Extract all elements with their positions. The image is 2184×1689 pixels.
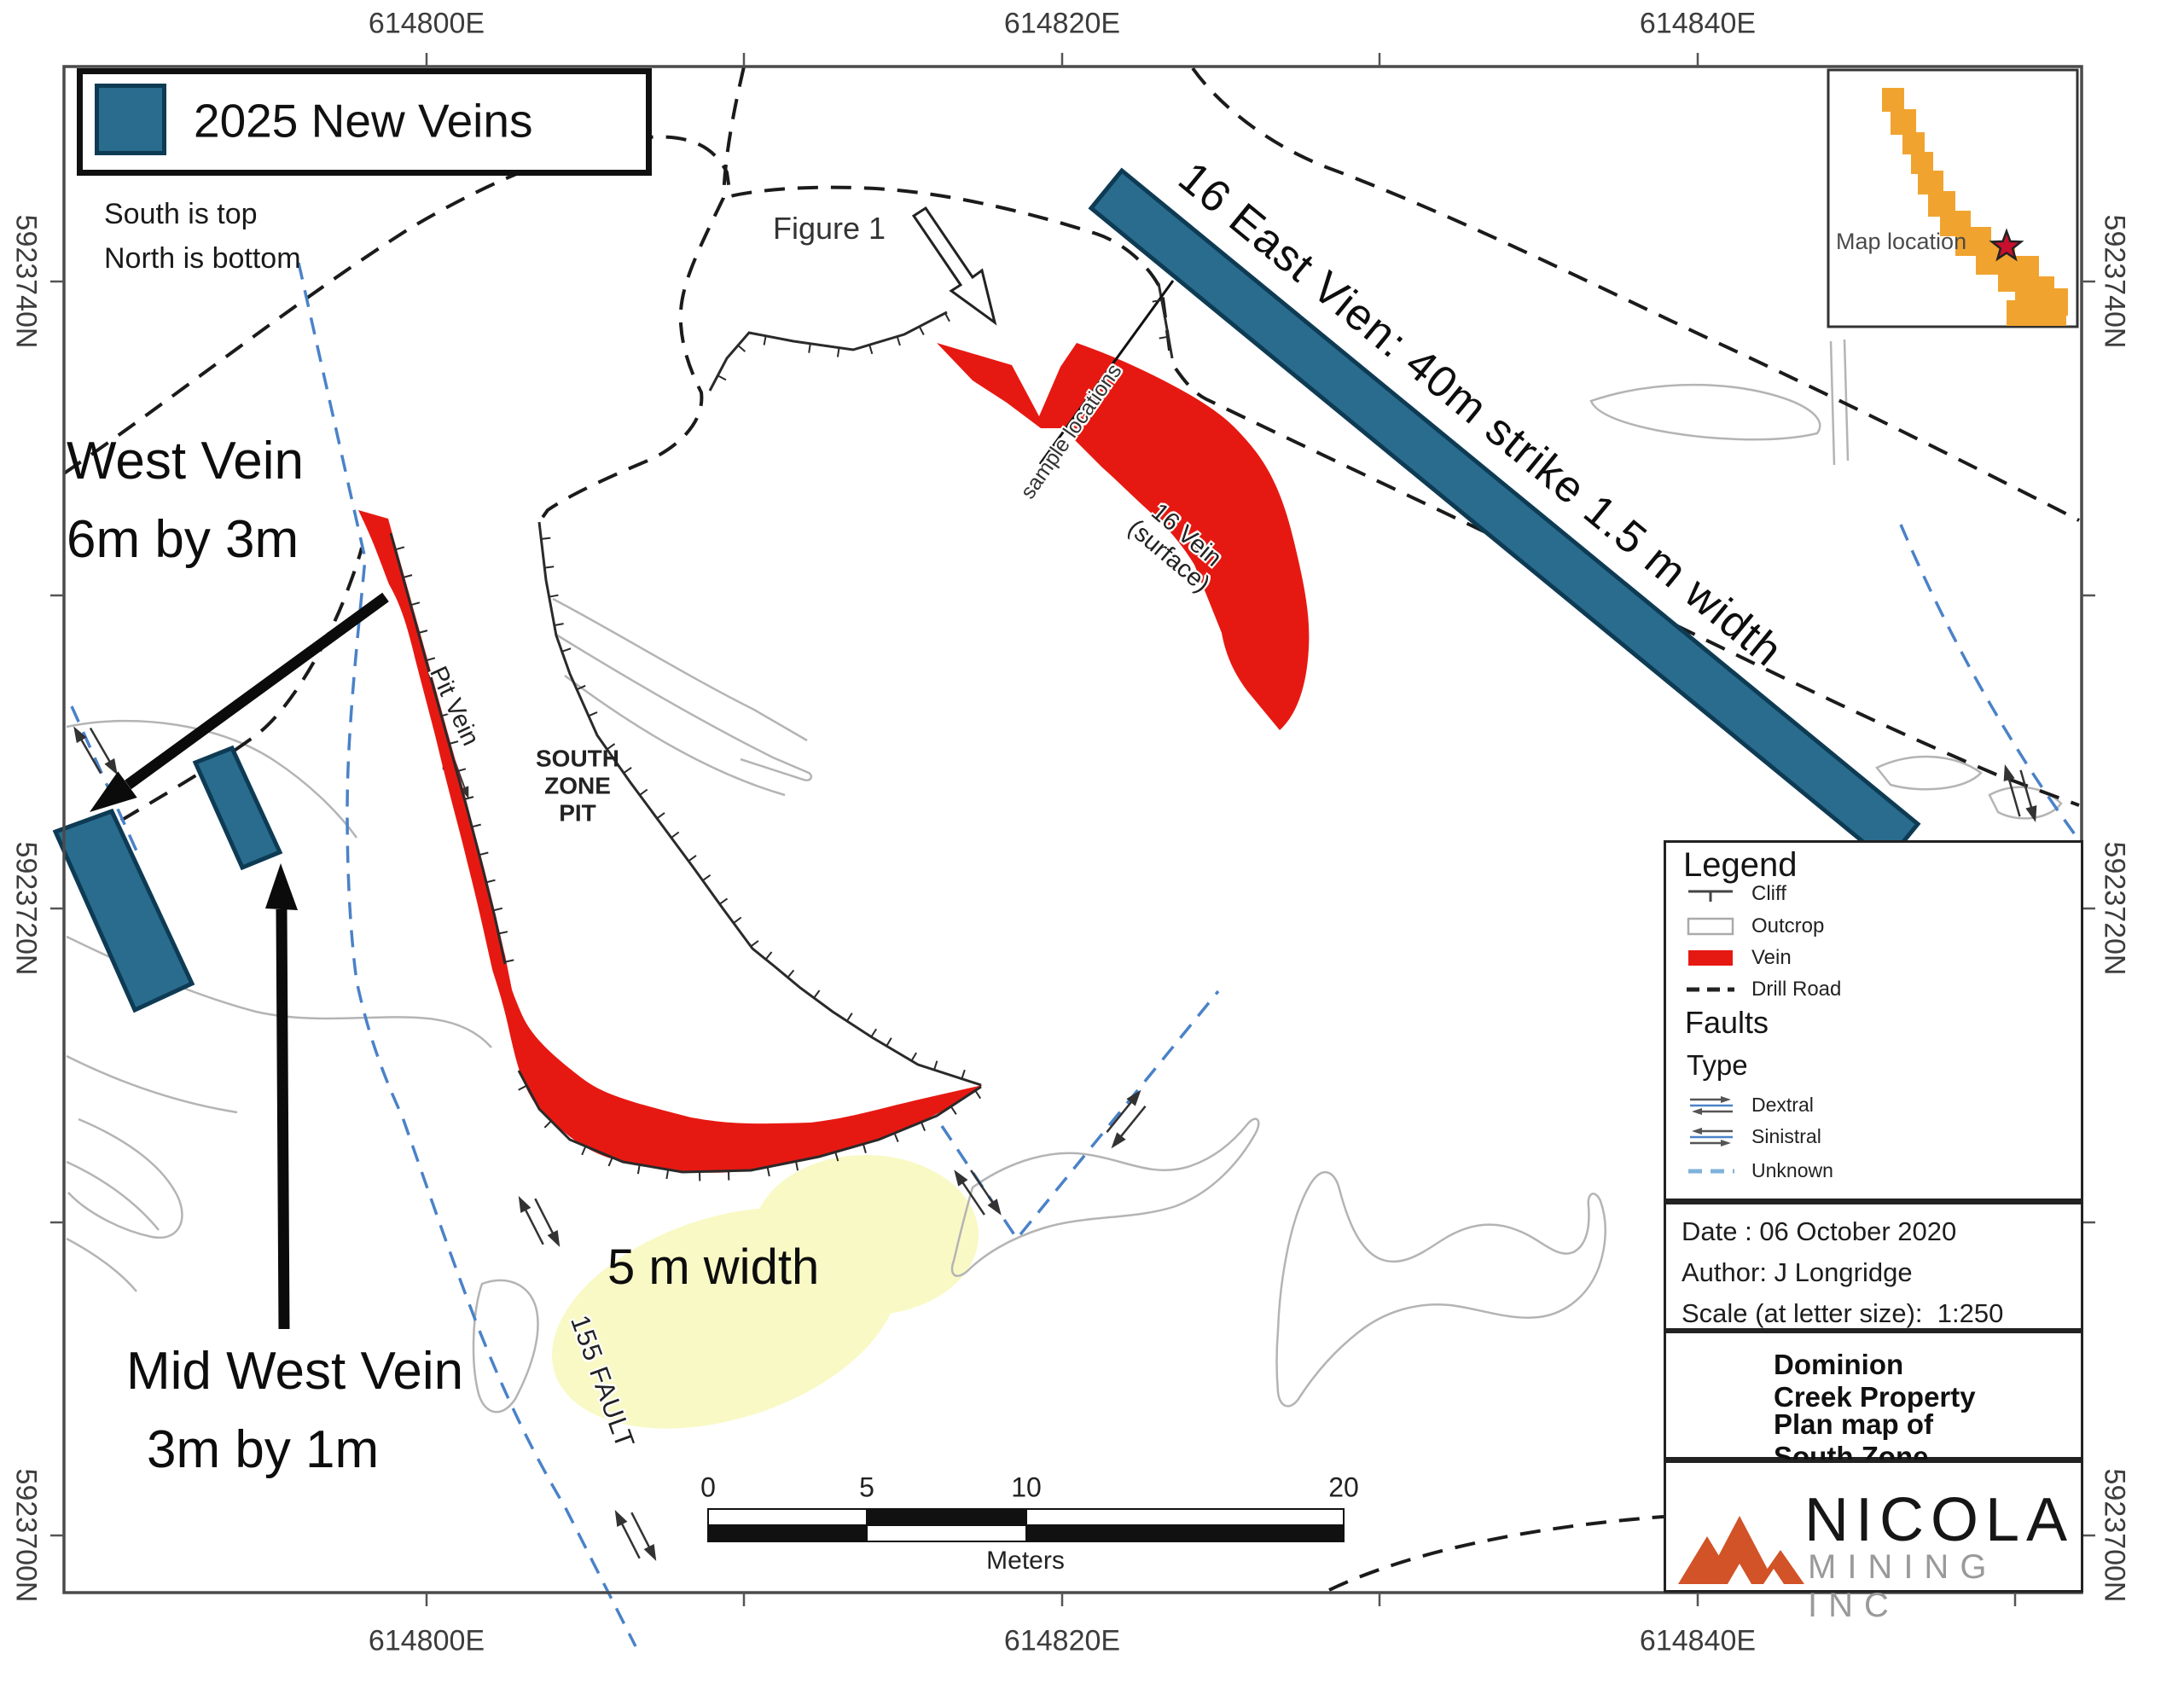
- cliff-hachure-tick: [895, 1133, 898, 1141]
- coord-label-top: 614840E: [1640, 8, 1756, 41]
- cliff-hachure-tick: [951, 1106, 956, 1114]
- coord-label-top: 614800E: [369, 8, 485, 41]
- cliff-line-pit-north-rim: [710, 312, 947, 391]
- cliff-hachure-tick: [809, 344, 810, 353]
- cliff-hachure-tick: [717, 375, 726, 380]
- coord-label-top: 614820E: [1004, 8, 1120, 41]
- cliff-hachure-tick: [562, 648, 571, 652]
- cliff-symbol-icon: [1683, 884, 1740, 906]
- coord-label-bottom: 614800E: [369, 1625, 485, 1658]
- fault-unknown-line: [1901, 525, 2079, 840]
- cliff-hachure-tick: [638, 1164, 640, 1174]
- outcrop-outline: [1989, 787, 2061, 819]
- mid-west-vein-shape: [195, 748, 280, 868]
- mid-west-vein-label-line2: 3m by 1m: [147, 1419, 379, 1480]
- outcrop-outline: [67, 1056, 237, 1112]
- cliff-hachure-tick: [541, 538, 550, 539]
- figure-1-arrow: [914, 208, 995, 322]
- cliff-hachure-tick: [897, 337, 900, 346]
- legend-title: Legend: [1683, 846, 1797, 885]
- cliff-hachure-tick: [589, 712, 597, 716]
- outcrop-outline: [68, 1119, 182, 1238]
- scalebar-tick-20: 20: [1328, 1472, 1359, 1504]
- property-title: Dominion Creek Property: [1774, 1349, 1978, 1413]
- cliff-hachure-tick: [486, 880, 496, 883]
- mid-west-vein-arrow: [265, 863, 298, 1329]
- sinistral-symbol-icon: [1683, 1125, 1743, 1149]
- logo-company-name: NICOLA: [1804, 1485, 2074, 1555]
- legend-item-cliff: Cliff: [1751, 882, 1786, 906]
- map-scale: Scale (at letter size): 1:250: [1682, 1298, 2003, 1329]
- map-author: Author: J Longridge: [1682, 1257, 1913, 1288]
- cliff-hachure-tick: [751, 941, 758, 947]
- vein-symbol-icon: [1683, 947, 1740, 969]
- west-vein-label-line1: West Vein: [67, 431, 304, 491]
- fault-unknown-line: [942, 991, 1218, 1239]
- cliff-hachure-tick: [847, 1013, 852, 1021]
- drill-road: [64, 136, 1170, 473]
- cliff-hachure-tick: [768, 1167, 770, 1176]
- legend-panel: Legend Cliff Outcrop Vein Drill Road Fau…: [1664, 840, 2083, 1201]
- new-veins-key-label: 2025 New Veins: [194, 94, 533, 148]
- scalebar-unit-label: Meters: [986, 1547, 1065, 1576]
- map-title-panel: Dominion Creek Property Plan map of Sout…: [1664, 1331, 2083, 1460]
- cliff-hachure-tick: [720, 898, 728, 903]
- cliff-hachure-tick: [961, 1070, 964, 1079]
- cliff-hachure-tick: [640, 790, 648, 796]
- cliff-hachure-tick: [921, 1122, 925, 1130]
- scalebar-tick-0: 0: [700, 1472, 716, 1504]
- drill-road: [64, 548, 362, 855]
- cliff-line-sample-area: [1159, 283, 1172, 358]
- coord-label-bottom: 614840E: [1640, 1625, 1756, 1658]
- map-info-panel: Date : 06 October 2020 Author: J Longrid…: [1664, 1201, 2083, 1331]
- legend-type-heading: Type: [1687, 1049, 1748, 1082]
- drill-road: [1329, 1517, 1664, 1590]
- cliff-hachure-tick: [945, 313, 950, 322]
- logo-panel: NICOLA MINING INC: [1664, 1460, 2083, 1593]
- nicola-mining-logo-icon: [1678, 1487, 1806, 1586]
- coord-label-right: 5923720N: [2098, 842, 2131, 976]
- scale-bar: [708, 1509, 1344, 1541]
- cliff-hachure-tick: [920, 327, 924, 335]
- cliff-hachure-tick: [582, 1146, 585, 1155]
- legend-item-drill-road: Drill Road: [1751, 978, 1841, 1001]
- cliff-hachure-tick: [764, 336, 766, 345]
- cliff-hachure-tick: [796, 1161, 798, 1170]
- cliff-hachure-tick: [624, 768, 631, 773]
- inset-map-location-label: Map location: [1836, 229, 1966, 255]
- cliff-hachure-tick: [838, 348, 839, 357]
- drill-road-symbol-icon: [1683, 978, 1740, 1001]
- legend-item-vein: Vein: [1751, 946, 1792, 970]
- cliff-hachure-tick: [934, 1061, 937, 1071]
- fault-kinematic-arrows: [516, 1191, 562, 1252]
- cliff-hachure-tick: [671, 833, 679, 839]
- orientation-note-line2: North is bottom: [104, 242, 301, 276]
- outcrop-outline: [67, 1162, 159, 1291]
- cliff-hachure-tick: [395, 547, 404, 549]
- dextral-symbol-icon: [1683, 1094, 1743, 1117]
- cliff-hachure-tick: [418, 630, 427, 633]
- west-vein-label-line2: 6m by 3m: [67, 509, 299, 570]
- cliff-hachure-tick: [403, 575, 412, 578]
- cliff-hachure-tick: [975, 1090, 980, 1098]
- legend-fault-type-unknown: Unknown: [1751, 1159, 1833, 1182]
- cliff-hachure-tick: [814, 990, 820, 998]
- cliff-hachure-tick: [544, 1121, 551, 1128]
- outcrop-outline: [1277, 1172, 1606, 1406]
- coord-label-left: 5923700N: [9, 1469, 43, 1603]
- legend-item-outcrop: Outcrop: [1751, 914, 1824, 938]
- plan-map-page: 2025 New Veins South is top North is bot…: [0, 0, 2184, 1689]
- cliff-hachure-tick: [787, 970, 793, 977]
- west-vein-shape: [55, 811, 192, 1010]
- legend-fault-type-dextral: Dextral: [1751, 1094, 1814, 1117]
- new-vein-color-swatch: [95, 84, 166, 155]
- cliff-hachure-tick: [766, 952, 772, 960]
- cliff-hachure-tick: [1153, 300, 1162, 302]
- cliff-hachure-tick: [657, 813, 665, 819]
- cliff-hachure-tick: [703, 875, 711, 880]
- pit-vein-shape: [358, 510, 983, 1173]
- map-date: Date : 06 October 2020: [1682, 1216, 1956, 1247]
- cliff-hachure-tick: [493, 908, 502, 911]
- new-veins-key-box: 2025 New Veins: [77, 68, 652, 176]
- cliff-hachure-tick: [734, 918, 741, 924]
- five-m-width-label: 5 m width: [607, 1239, 819, 1296]
- cliff-hachure-tick: [738, 345, 745, 351]
- cliff-hachure-tick: [869, 345, 872, 354]
- coord-label-bottom: 614820E: [1004, 1625, 1120, 1658]
- cliff-hachure-tick: [479, 853, 489, 856]
- outcrop-symbol-icon: [1683, 915, 1740, 937]
- outcrop-outline: [1591, 385, 1820, 439]
- fault-kinematic-arrows: [613, 1505, 659, 1566]
- fault-kinematic-arrows: [1100, 1089, 1153, 1148]
- coord-label-left: 5923720N: [9, 842, 43, 976]
- scalebar-tick-10: 10: [1011, 1472, 1042, 1504]
- cliff-hachure-tick: [472, 825, 481, 827]
- figure-1-label: Figure 1: [773, 211, 886, 247]
- cliff-hachure-tick: [863, 1144, 866, 1153]
- cliff-hachure-tick: [498, 932, 508, 933]
- cliff-hachure-tick: [549, 595, 559, 597]
- unknown-fault-symbol-icon: [1683, 1160, 1743, 1182]
- coord-label-left: 5923740N: [9, 215, 43, 349]
- orientation-note-line1: South is top: [104, 198, 258, 231]
- cliff-hachure-tick: [886, 1038, 892, 1047]
- cliff-hachure-tick: [544, 566, 554, 567]
- logo-company-subtitle: MINING INC: [1808, 1548, 2081, 1625]
- outcrop-outline: [952, 1119, 1258, 1276]
- cliff-hachure-tick: [871, 1029, 876, 1036]
- cliff-hachure-tick: [519, 1086, 527, 1090]
- legend-fault-type-sinistral: Sinistral: [1751, 1125, 1821, 1148]
- cliff-hachure-tick: [666, 1170, 668, 1179]
- south-zone-pit-label: SOUTH ZONE PIT: [536, 746, 619, 828]
- cliff-hachure-tick: [464, 797, 473, 799]
- cliff-hachure-tick: [688, 856, 696, 862]
- coord-label-right: 5923700N: [2098, 1469, 2131, 1603]
- coord-label-right: 5923740N: [2098, 215, 2131, 349]
- cliff-hachure-tick: [912, 1053, 917, 1060]
- cliff-hachure-tick: [609, 1158, 613, 1166]
- mid-west-vein-label-line1: Mid West Vein: [126, 1341, 463, 1402]
- legend-faults-heading: Faults: [1685, 1005, 1769, 1041]
- cliff-hachure-tick: [555, 624, 564, 625]
- scalebar-tick-5: 5: [859, 1472, 874, 1504]
- fault-kinematic-arrows: [72, 720, 120, 781]
